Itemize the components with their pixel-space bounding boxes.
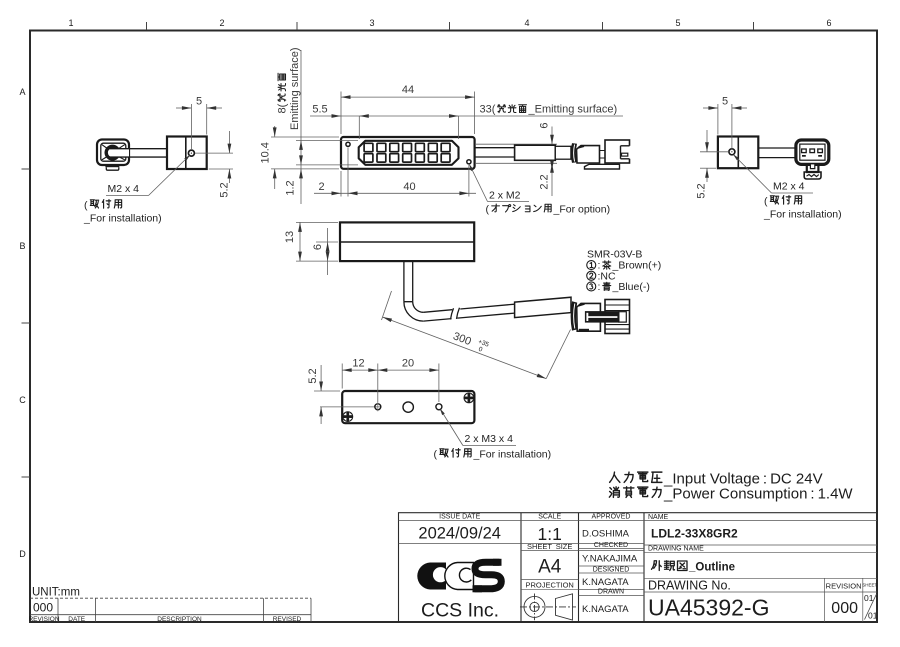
svg-text:000: 000	[831, 600, 858, 617]
svg-text:LDL2-33X8GR2: LDL2-33X8GR2	[651, 527, 738, 541]
svg-text:CCS Inc.: CCS Inc.	[421, 600, 499, 622]
svg-text:2024/09/24: 2024/09/24	[418, 525, 501, 543]
svg-text:01: 01	[868, 611, 878, 621]
svg-text:_For installation): _For installation)	[473, 449, 552, 461]
svg-text:C: C	[19, 395, 26, 405]
svg-text:CHECKED: CHECKED	[594, 542, 628, 549]
svg-text:DRAWING NAME: DRAWING NAME	[648, 545, 704, 552]
svg-text:DRAWING No.: DRAWING No.	[648, 579, 731, 593]
svg-text:5: 5	[722, 96, 728, 108]
svg-text:NAME: NAME	[648, 514, 669, 521]
svg-text:5.2: 5.2	[307, 368, 319, 383]
svg-text:APPROVED: APPROVED	[592, 514, 631, 521]
svg-text::: :	[598, 281, 601, 293]
svg-text:4: 4	[524, 18, 529, 28]
svg-text:PROJECTION: PROJECTION	[526, 580, 574, 589]
svg-text:_Power Consumption : 1.4W: _Power Consumption : 1.4W	[663, 486, 853, 503]
svg-text:D.OSHIMA: D.OSHIMA	[582, 529, 630, 540]
svg-text:_Outline: _Outline	[688, 562, 735, 574]
svg-text:6: 6	[826, 18, 831, 28]
svg-text:5.5: 5.5	[312, 104, 327, 116]
svg-text:44: 44	[402, 84, 414, 96]
svg-text:D: D	[19, 549, 26, 559]
svg-text:REVISION: REVISION	[28, 616, 59, 623]
svg-text:Emitting surface): Emitting surface)	[289, 47, 301, 130]
svg-text:UNIT:mm: UNIT:mm	[32, 587, 80, 599]
svg-text:_For installation): _For installation)	[83, 213, 162, 225]
svg-text:B: B	[19, 241, 25, 251]
svg-text:DRAWN: DRAWN	[598, 589, 624, 596]
svg-text:ISSUE DATE: ISSUE DATE	[439, 514, 480, 521]
svg-text:REVISION: REVISION	[826, 582, 862, 591]
svg-text:M2 x 4: M2 x 4	[773, 181, 805, 193]
svg-text:SHEET SIZE: SHEET SIZE	[527, 542, 572, 551]
svg-text:_For installation): _For installation)	[763, 209, 842, 221]
svg-text:5.2: 5.2	[696, 183, 708, 198]
svg-text:33(: 33(	[480, 104, 496, 116]
svg-text:(: (	[84, 200, 88, 212]
svg-text:8(: 8(	[277, 103, 289, 113]
svg-text:(: (	[486, 204, 490, 216]
svg-text:2 x M2: 2 x M2	[489, 190, 521, 202]
svg-text:K.NAGATA: K.NAGATA	[582, 604, 629, 615]
svg-text:000: 000	[33, 601, 53, 615]
svg-text:3: 3	[369, 18, 374, 28]
svg-text:1.2: 1.2	[285, 180, 297, 195]
svg-text:_Brown(+): _Brown(+)	[612, 260, 662, 272]
svg-text:Y.NAKAJIMA: Y.NAKAJIMA	[582, 554, 638, 565]
svg-text:(: (	[764, 196, 768, 208]
svg-text:5: 5	[196, 96, 202, 108]
svg-text:DATE: DATE	[68, 616, 86, 623]
svg-text:DESIGNED: DESIGNED	[593, 566, 630, 573]
svg-text:2: 2	[219, 18, 224, 28]
svg-text:1: 1	[68, 18, 73, 28]
svg-text:12: 12	[352, 358, 364, 370]
svg-text:_Blue(-): _Blue(-)	[612, 281, 650, 293]
svg-text:A: A	[19, 87, 25, 97]
svg-text:5.2: 5.2	[219, 182, 231, 197]
svg-text:5: 5	[675, 18, 680, 28]
svg-text:13: 13	[284, 231, 296, 243]
svg-text:UA45392-G: UA45392-G	[648, 595, 769, 621]
svg-text:A4: A4	[538, 557, 562, 578]
svg-text:01: 01	[864, 593, 874, 603]
svg-text:SHEET: SHEET	[862, 583, 877, 588]
svg-text:SCALE: SCALE	[538, 514, 561, 521]
svg-text:2.2: 2.2	[539, 174, 551, 189]
svg-text:10.4: 10.4	[260, 142, 272, 163]
svg-text:6: 6	[539, 122, 551, 128]
svg-text:SMR-03V-B: SMR-03V-B	[587, 249, 642, 261]
svg-text:_Emitting surface): _Emitting surface)	[528, 104, 618, 116]
svg-text:6: 6	[312, 244, 324, 250]
svg-text:40: 40	[403, 181, 415, 193]
svg-text:REVISED: REVISED	[273, 616, 302, 623]
svg-text:_For option): _For option)	[553, 204, 611, 216]
svg-text:DESCRIPTION: DESCRIPTION	[157, 616, 202, 623]
svg-text:M2 x 4: M2 x 4	[108, 183, 140, 195]
svg-text:K.NAGATA: K.NAGATA	[582, 577, 629, 588]
svg-text:2: 2	[318, 181, 324, 193]
svg-text:(: (	[434, 449, 438, 461]
svg-text:2 x M3 x 4: 2 x M3 x 4	[465, 433, 514, 445]
svg-text:20: 20	[402, 358, 414, 370]
